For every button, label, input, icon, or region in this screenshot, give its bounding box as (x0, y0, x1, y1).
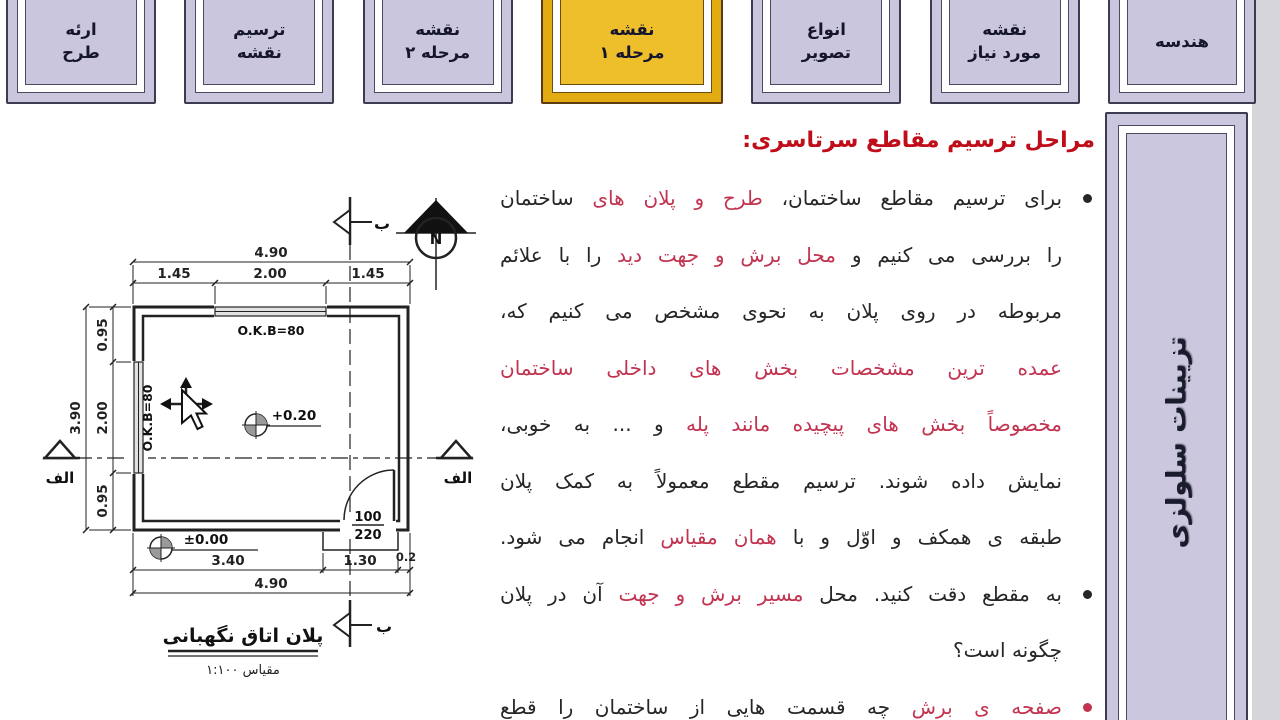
tab-naghshe-mored-niaz[interactable]: نقشه مورد نیاز (930, 0, 1080, 104)
tab-label: نقشه (415, 18, 460, 41)
line-text: چگونه است؟ (953, 638, 1062, 662)
door-height-label: 220 (354, 528, 381, 543)
line-text: برای ترسیم مقاطع ساختمان، طرح و پلان های… (500, 186, 1062, 210)
text-segment: مربوطه در روی پلان به نحوی مشخص می کنیم … (500, 299, 1062, 323)
body-text: مراحل ترسیم مقاطع سرتاسری: برای ترسیم مق… (500, 118, 1095, 720)
sidebar-section-label: تزیینات سلولزی (1161, 336, 1192, 548)
tab-naghshe-marhale-2[interactable]: نقشه مرحله ۲ (363, 0, 513, 104)
text-segment: نمایش داده شوند. ترسیم مقطع معمولاً به ک… (500, 469, 1062, 493)
dim-top-2: 2.00 (253, 266, 286, 282)
dimensions-top: 4.90 1.45 2.00 1.45 (130, 245, 413, 304)
text-segment: مسیر برش و جهت (618, 582, 803, 606)
text-segment: آن در پلان (500, 582, 618, 606)
tab-araeh-tarh[interactable]: ارئه طرح (6, 0, 156, 104)
text-segment: ساختمان (500, 186, 592, 210)
tab-label: مرحله ۱ (600, 41, 665, 64)
section-line-b: ب ب (334, 197, 392, 647)
text-segment: چگونه است؟ (953, 638, 1062, 662)
door-width-label: 100 (354, 510, 381, 525)
tab-label: نقشه (610, 18, 655, 41)
dim-bottom-2: 1.30 (343, 553, 376, 569)
text-segment: برای ترسیم مقاطع ساختمان، (763, 186, 1062, 210)
slide: ارئه طرح ترسیم نقشه نقشه مرحله ۲ نقشه مر… (0, 0, 1280, 720)
tab-label: مرحله ۲ (405, 41, 470, 64)
line-text: عمده ترین مشخصات بخش های داخلی ساختمان (500, 356, 1062, 380)
bullet-dot (1083, 194, 1092, 203)
window-left-label: O.K.B=80 (140, 384, 155, 451)
text-line: چگونه است؟ (500, 622, 1062, 679)
tab-bar: ارئه طرح ترسیم نقشه نقشه مرحله ۲ نقشه مر… (0, 0, 1256, 104)
dim-top-3: 1.45 (351, 266, 384, 282)
plan-scale-text: مقیاس ۱:۱۰۰ (206, 663, 280, 678)
dim-bottom-3: 0.2 (396, 550, 416, 564)
level-markers: +0.20 ±0.00 (147, 408, 321, 562)
window-top-label: O.K.B=80 (238, 323, 305, 338)
section-b-label-top: ب (374, 214, 390, 233)
text-line: برای ترسیم مقاطع ساختمان، طرح و پلان های… (500, 170, 1062, 227)
tab-label: نقشه (237, 41, 282, 64)
section-b-label-bottom: ب (376, 617, 392, 636)
dim-left-total: 3.90 (68, 401, 84, 434)
right-edge-strip (1252, 0, 1280, 720)
line-text: صفحه ی برش چه قسمت هایی از ساختمان را قط… (500, 695, 1062, 719)
dim-bottom-1: 3.40 (211, 553, 244, 569)
text-segment: به مقطع دقت کنید. محل (803, 582, 1062, 606)
text-line: مخصوصاً بخش های پیچیده مانند پله و ... ب… (500, 396, 1062, 453)
text-segment: محل برش و جهت دید (617, 243, 836, 267)
text-segment: صفحه ی برش (912, 695, 1062, 719)
floor-plan: ب ب N الف الف (18, 180, 488, 695)
dim-left-3: 0.95 (95, 484, 111, 517)
tab-label: ارئه (65, 18, 96, 41)
bullet-lines: برای ترسیم مقاطع ساختمان، طرح و پلان های… (500, 170, 1062, 720)
tab-anva-tasvir[interactable]: انواع تصویر (751, 0, 901, 104)
text-segment: را با علائم (500, 243, 617, 267)
tab-naghshe-marhale-1-active[interactable]: نقشه مرحله ۱ (541, 0, 723, 104)
north-label: N (430, 230, 443, 248)
text-segment: طبقه ی همکف و اوّل و با (777, 525, 1062, 549)
dim-top-1: 1.45 (157, 266, 190, 282)
floor-plan-svg: ب ب N الف الف (18, 180, 488, 695)
tab-tarsim-naghshe[interactable]: ترسیم نقشه (184, 0, 334, 104)
tab-label: نقشه (982, 18, 1027, 41)
dim-left-2: 2.00 (95, 401, 111, 434)
level-outside-label: ±0.00 (184, 532, 229, 548)
page-title: مراحل ترسیم مقاطع سرتاسری: (500, 118, 1095, 170)
section-a-label-right: الف (444, 469, 473, 487)
text-line: را بررسی می کنیم و محل برش و جهت دید را … (500, 227, 1062, 284)
text-segment: مخصوصاً بخش های پیچیده مانند پله (686, 412, 1062, 436)
text-line: به مقطع دقت کنید. محل مسیر برش و جهت آن … (500, 566, 1062, 623)
line-text: به مقطع دقت کنید. محل مسیر برش و جهت آن … (500, 582, 1062, 606)
plan-caption: پلان اتاق نگهبانی مقیاس ۱:۱۰۰ (163, 624, 324, 678)
bullet-dot (1083, 590, 1092, 599)
tab-label: مورد نیاز (968, 41, 1041, 64)
tab-label: انواع (807, 18, 846, 41)
mouse-cursor-icon (160, 377, 213, 429)
dim-left-1: 0.95 (95, 318, 111, 351)
line-text: مربوطه در روی پلان به نحوی مشخص می کنیم … (500, 299, 1062, 323)
text-line: طبقه ی همکف و اوّل و با همان مقیاس انجام… (500, 509, 1062, 566)
text-segment: طرح و پلان های (592, 186, 762, 210)
plan-caption-text: پلان اتاق نگهبانی (163, 624, 324, 647)
text-line: نمایش داده شوند. ترسیم مقطع معمولاً به ک… (500, 453, 1062, 510)
bullet-dot (1083, 703, 1092, 712)
dimensions-left: 3.90 0.95 2.00 0.95 (68, 304, 131, 533)
tab-label: تصویر (802, 41, 851, 64)
text-line: عمده ترین مشخصات بخش های داخلی ساختمان (500, 340, 1062, 397)
section-a-label-left: الف (46, 469, 75, 487)
north-arrow-icon: N (396, 198, 476, 290)
text-line: صفحه ی برش چه قسمت هایی از ساختمان را قط… (500, 679, 1062, 720)
line-text: را بررسی می کنیم و محل برش و جهت دید را … (500, 243, 1062, 267)
sidebar-section-tazinat-selolozi[interactable]: تزیینات سلولزی (1105, 112, 1248, 720)
tab-hendese[interactable]: هندسه (1108, 0, 1256, 104)
text-line: مربوطه در روی پلان به نحوی مشخص می کنیم … (500, 283, 1062, 340)
line-text: نمایش داده شوند. ترسیم مقطع معمولاً به ک… (500, 469, 1062, 493)
text-segment: را بررسی می کنیم و (836, 243, 1062, 267)
tab-label: هندسه (1155, 30, 1209, 53)
text-segment: عمده ترین مشخصات بخش های داخلی ساختمان (500, 356, 1062, 380)
tab-label: ترسیم (233, 18, 285, 41)
line-text: طبقه ی همکف و اوّل و با همان مقیاس انجام… (500, 525, 1062, 549)
text-segment: چه قسمت هایی از ساختمان را قطع (500, 695, 912, 719)
dim-top-total: 4.90 (254, 245, 287, 261)
dim-bottom-total: 4.90 (254, 576, 287, 592)
tab-label: طرح (62, 41, 100, 64)
level-inside-label: +0.20 (272, 408, 317, 424)
text-segment: و ... به خوبی، (500, 412, 686, 436)
text-segment: انجام می شود. (500, 525, 660, 549)
line-text: مخصوصاً بخش های پیچیده مانند پله و ... ب… (500, 412, 1062, 436)
text-segment: همان مقیاس (660, 525, 776, 549)
